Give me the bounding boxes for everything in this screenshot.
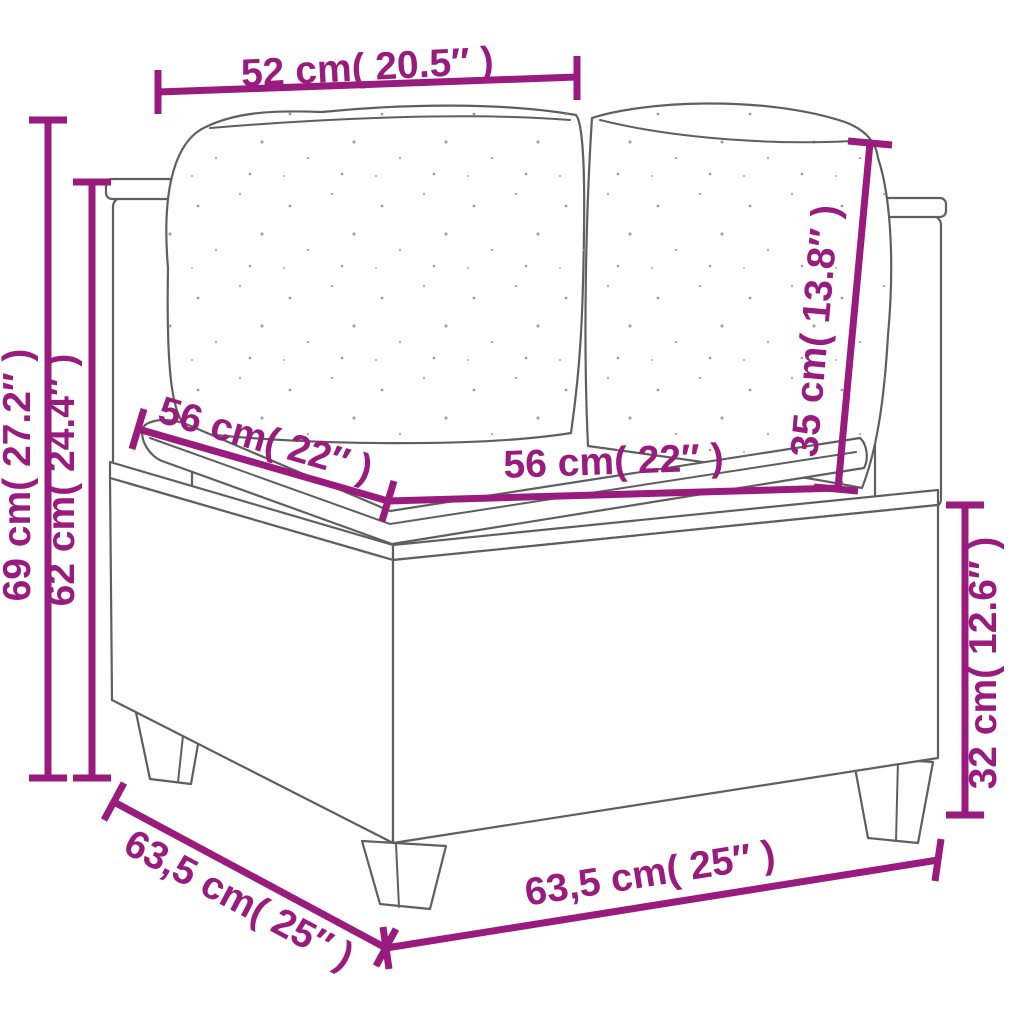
dim-seat-width-label: 56 cm( 22″ ) bbox=[503, 436, 725, 487]
dim-front-width-label: 63,5 cm( 25″ ) bbox=[522, 833, 778, 915]
dim-cushion-height-tick-top bbox=[848, 141, 892, 145]
dim-total-height-label: 69 cm( 27.2″ ) bbox=[0, 349, 39, 602]
back-cushion-left bbox=[166, 106, 584, 444]
dim-front-width-tick-right bbox=[935, 839, 941, 881]
dim-base-height-label: 32 cm( 12.6″ ) bbox=[962, 537, 1005, 790]
dim-cushion-height-tick-bottom bbox=[814, 487, 858, 491]
dim-front-width: 63,5 cm( 25″ ) bbox=[383, 833, 941, 969]
dim-back-height-label: 62 cm( 24.4″ ) bbox=[40, 354, 83, 607]
leg-front bbox=[362, 841, 446, 909]
base-face-front bbox=[393, 505, 938, 843]
dim-front-width-tick-left bbox=[383, 927, 389, 969]
dim-base-height: 32 cm( 12.6″ ) bbox=[946, 505, 1005, 815]
dimension-diagram: 52 cm( 20.5″ ) 69 cm( 27.2″ ) 62 cm( 24.… bbox=[0, 0, 1024, 1024]
dim-side-depth-label: 63,5 cm( 25″ ) bbox=[117, 822, 360, 979]
dim-top-width-label: 52 cm( 20.5″ ) bbox=[240, 39, 495, 95]
dim-top-width: 52 cm( 20.5″ ) bbox=[158, 39, 577, 114]
dim-side-depth-tick-left bbox=[104, 783, 124, 820]
